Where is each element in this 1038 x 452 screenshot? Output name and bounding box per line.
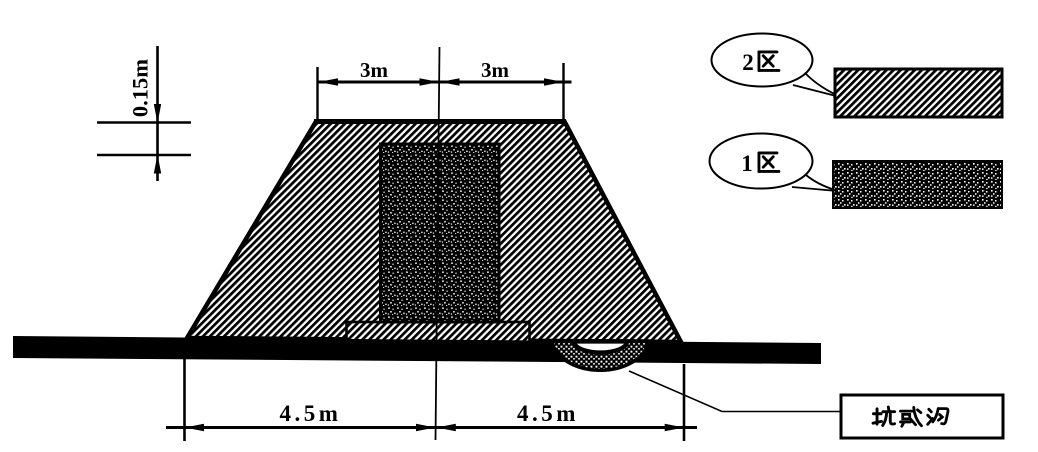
svg-text:4.5m: 4.5m bbox=[280, 401, 342, 426]
svg-text:3m: 3m bbox=[481, 58, 510, 82]
svg-text:0.15m: 0.15m bbox=[128, 59, 153, 117]
svg-text:2: 2 bbox=[742, 50, 754, 75]
svg-text:1: 1 bbox=[741, 151, 753, 176]
svg-text:3m: 3m bbox=[360, 58, 389, 82]
svg-text:4.5m: 4.5m bbox=[517, 401, 579, 426]
